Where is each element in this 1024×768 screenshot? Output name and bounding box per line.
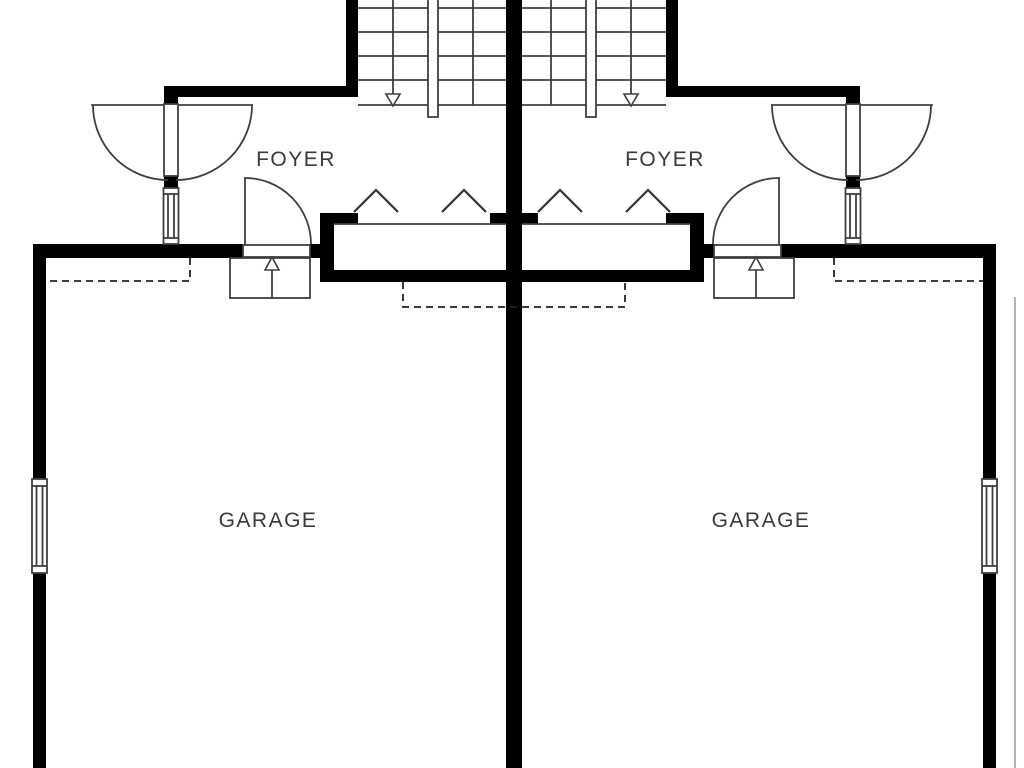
door-swing-arc <box>772 105 848 180</box>
garage-step-right <box>714 257 794 298</box>
entry-sill-wall-left <box>164 175 178 188</box>
party-wall-center <box>506 0 522 768</box>
overhead-outline-left <box>46 258 190 281</box>
bifold-door-icon <box>626 190 670 212</box>
entry-jamb-right <box>846 86 860 106</box>
staircase-left <box>358 0 506 117</box>
stair-side-wall-left <box>346 0 358 97</box>
foyer-label-left: FOYER <box>256 148 336 171</box>
closet-left <box>334 190 506 224</box>
staircase-right <box>522 0 666 117</box>
entry-door-left <box>92 104 252 244</box>
garage-entry-door-right <box>713 178 794 298</box>
closet-back-wall-right <box>522 270 704 282</box>
garage-entry-door-left <box>230 178 311 298</box>
front-wall-right <box>666 86 860 97</box>
front-wall-left <box>164 86 358 97</box>
window <box>32 479 47 573</box>
stair-side-wall-right <box>666 0 678 97</box>
closet-header-stub-right-b <box>666 213 704 224</box>
floor-plan-page: FOYER FOYER GARAGE GARAGE <box>0 0 1024 768</box>
entry-door-right <box>772 104 932 244</box>
stair-handrail <box>586 0 596 117</box>
door-swing-arc <box>176 105 252 180</box>
sidelight-window-right <box>846 188 861 244</box>
sidelight-window-left <box>164 188 179 244</box>
door-swing-arc <box>93 105 168 180</box>
door-swing-arc <box>856 105 931 180</box>
door-threshold <box>714 245 781 257</box>
closet-header-stub-left-b <box>490 213 506 224</box>
foyer-label-right: FOYER <box>625 148 705 171</box>
closet-header-stub-right-a <box>522 213 538 224</box>
floor-plan-drawing: FOYER FOYER GARAGE GARAGE <box>0 0 1024 768</box>
overhead-outline-right <box>834 258 983 281</box>
garage-label-right: GARAGE <box>712 509 811 532</box>
bifold-door-icon <box>354 190 398 212</box>
garage-window-right <box>982 479 997 573</box>
garage-label-left: GARAGE <box>219 509 318 532</box>
door-frame <box>846 104 860 176</box>
window <box>982 479 997 573</box>
garage-top-wall-right <box>781 244 996 258</box>
garage-step-left <box>230 257 310 298</box>
garage-top-wall-left <box>33 244 243 258</box>
closet-right <box>522 190 690 224</box>
door-swing-arc <box>245 178 311 244</box>
entry-jamb-left <box>164 86 178 106</box>
stair-handrail <box>428 0 438 117</box>
closet-back-wall-left <box>320 270 506 282</box>
closet-header-stub-left-a <box>320 213 358 224</box>
door-frame <box>164 104 178 176</box>
bifold-door-icon <box>538 190 582 212</box>
door-threshold <box>243 245 310 257</box>
window <box>846 188 861 244</box>
door-swing-arc <box>713 178 779 244</box>
entry-sill-wall-right <box>846 175 860 188</box>
bifold-door-icon <box>442 190 486 212</box>
garage-window-left <box>32 479 47 573</box>
window <box>164 188 179 244</box>
